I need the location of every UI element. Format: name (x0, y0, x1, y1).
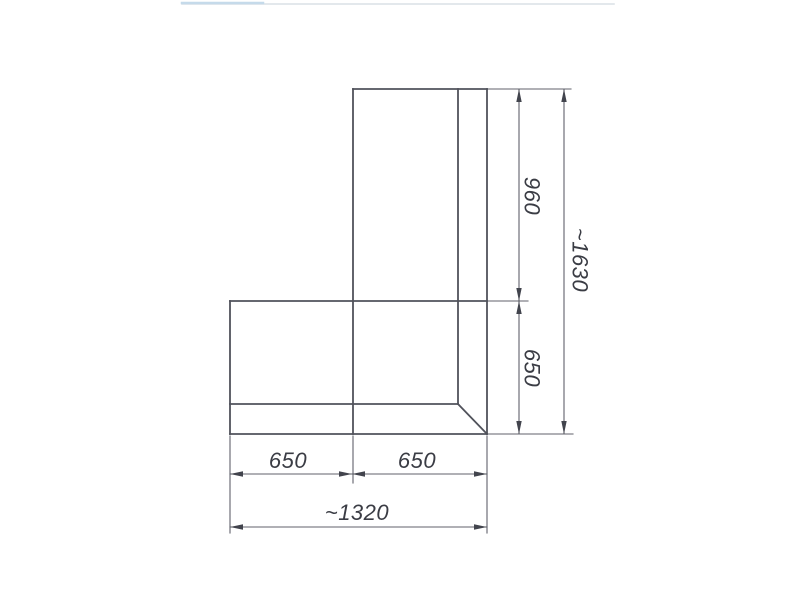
dim-label-1630: ~1630 (567, 228, 592, 293)
l-shape-technical-drawing: 960650~1630650650~1320 (0, 0, 800, 600)
dim-label-650-bottom-left: 650 (269, 448, 307, 473)
scanned-drawing-page: 960650~1630650650~1320 (0, 0, 800, 600)
shape-corner-diagonal (458, 404, 487, 434)
dim-arrow-right (339, 471, 352, 476)
dim-label-960: 960 (519, 177, 544, 215)
dim-arrow-down (516, 288, 521, 301)
dim-arrow-up (561, 89, 566, 102)
dim-arrow-left (230, 524, 243, 529)
dim-label-1320: ~1320 (325, 500, 390, 525)
dim-arrow-down (516, 421, 521, 434)
dim-arrow-left (230, 471, 243, 476)
dim-arrow-left (352, 471, 365, 476)
dim-arrow-down (561, 421, 566, 434)
dim-arrow-right (474, 471, 487, 476)
dim-arrow-up (516, 301, 521, 314)
dim-label-650-bottom-right: 650 (398, 448, 436, 473)
dim-arrow-up (516, 89, 521, 102)
dim-arrow-right (474, 524, 487, 529)
dim-label-650-right: 650 (519, 349, 544, 387)
